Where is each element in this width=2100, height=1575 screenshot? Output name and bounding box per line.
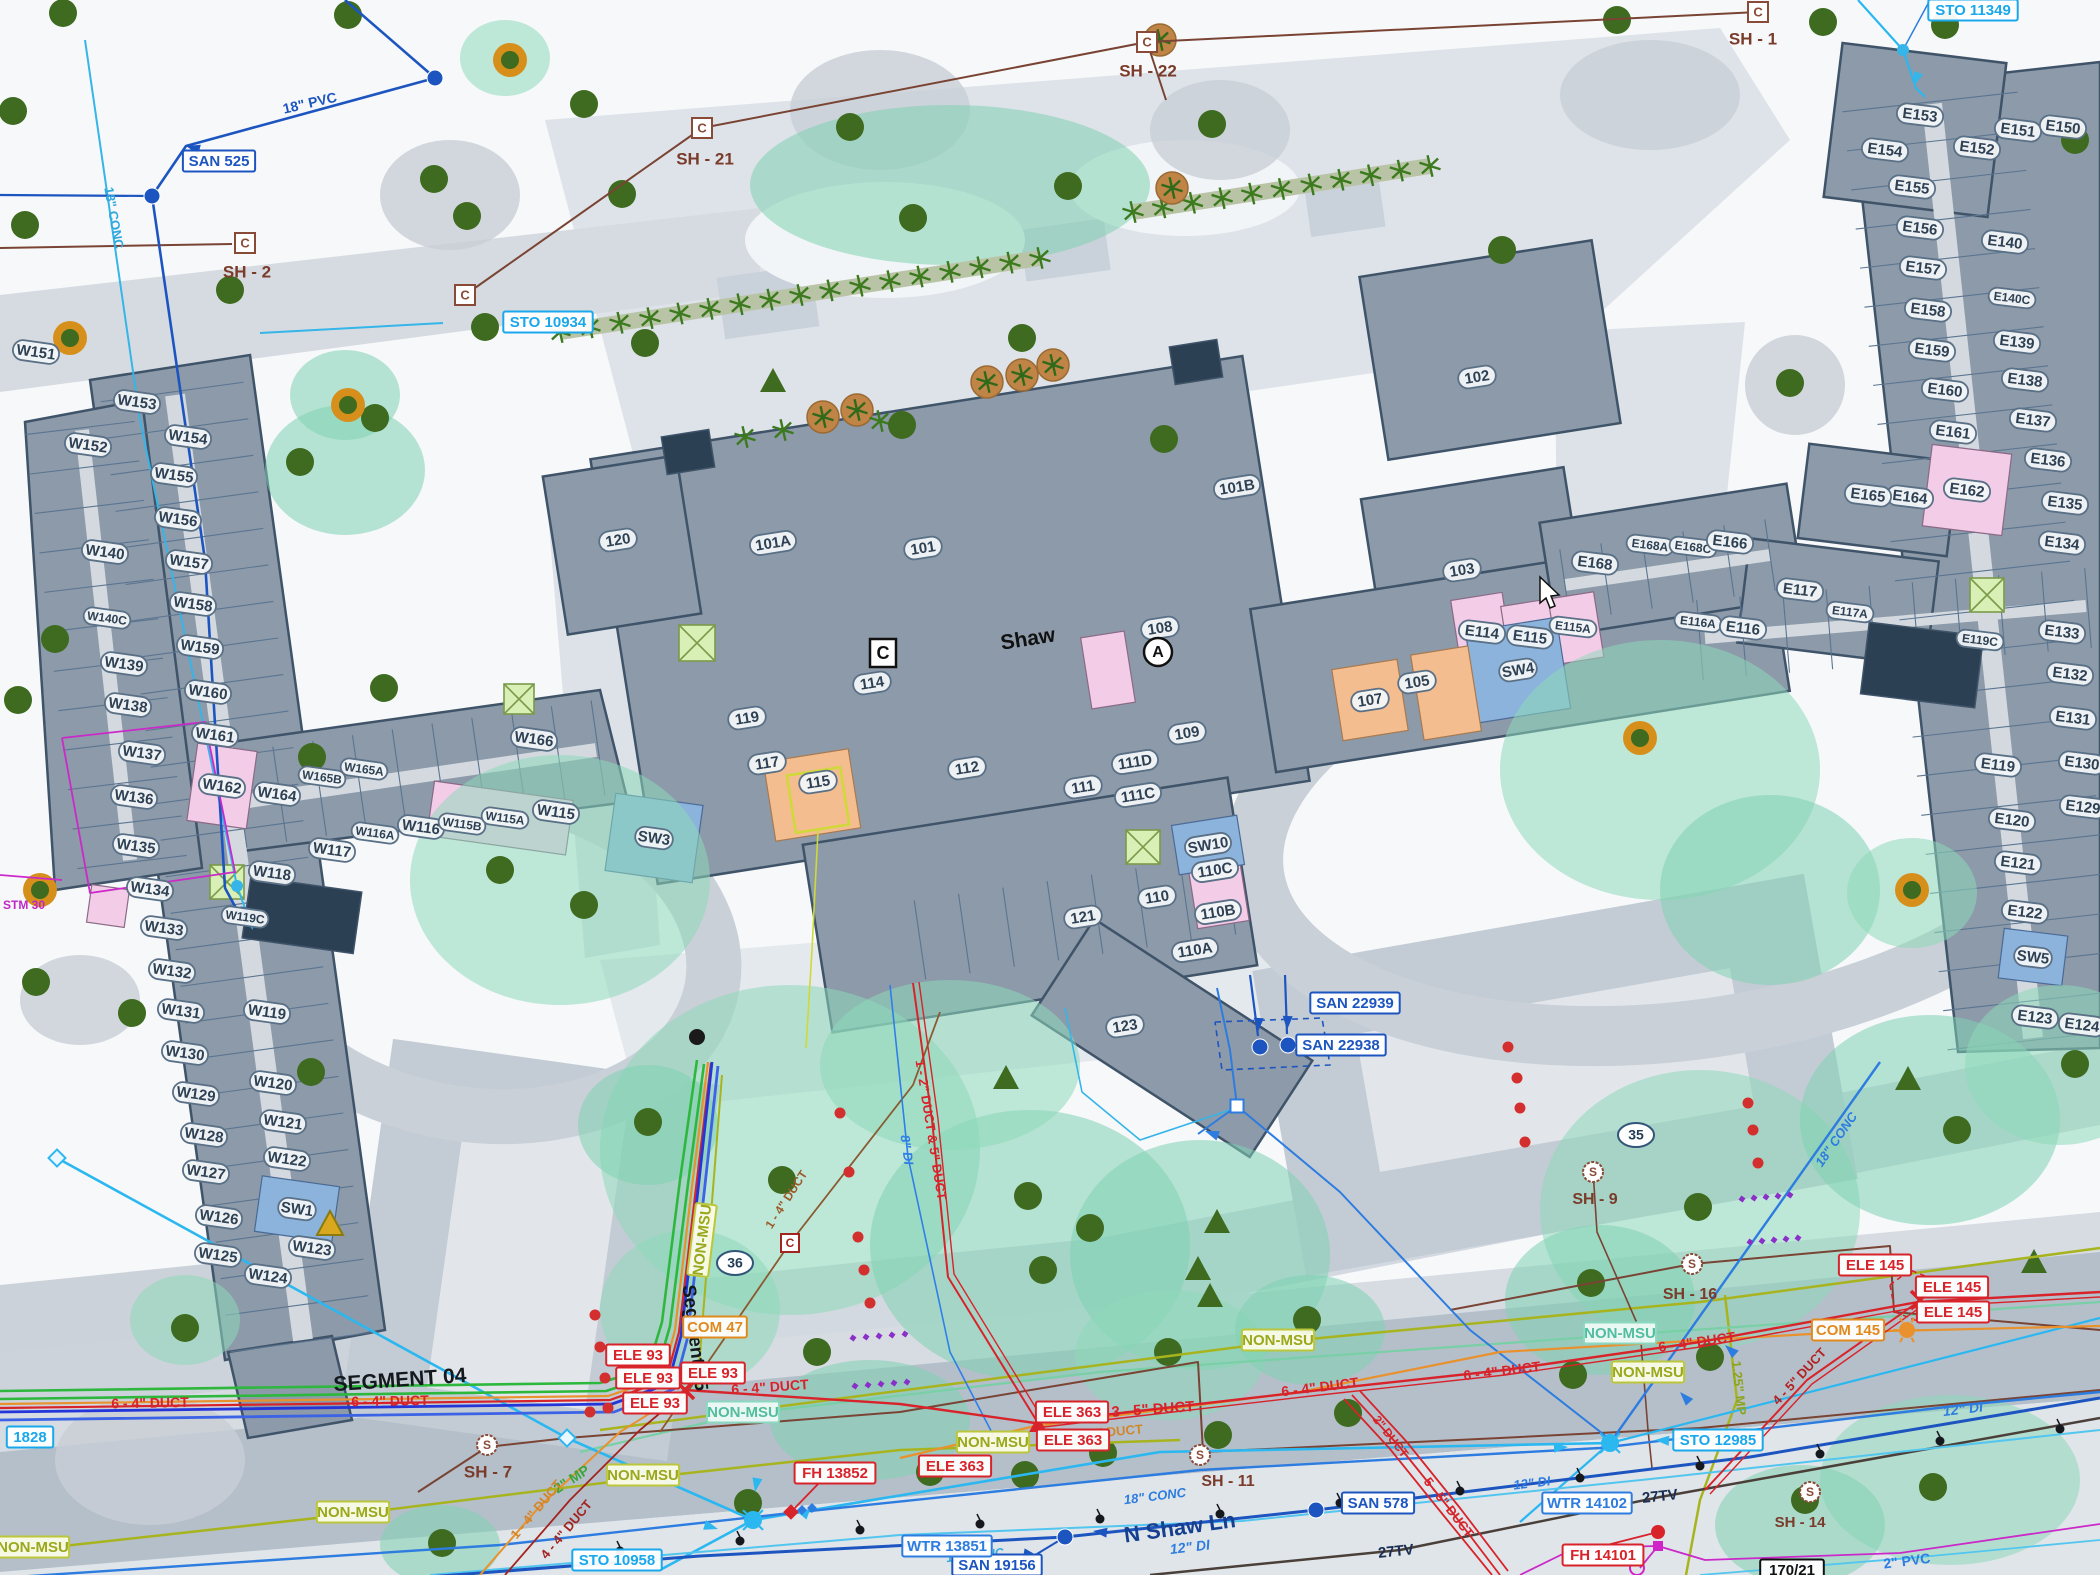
utility-label[interactable]: WTR 13851 xyxy=(902,1536,991,1557)
tree-icon xyxy=(1776,369,1804,397)
utility-line xyxy=(0,195,152,196)
utility-label[interactable]: 1828 xyxy=(7,1427,53,1448)
duct-entry-icon xyxy=(689,1029,705,1045)
tree-canopy xyxy=(820,980,1080,1150)
utility-label-text: ELE 93 xyxy=(623,1370,673,1387)
tree-icon xyxy=(836,113,864,141)
red-dot-icon xyxy=(1748,1125,1759,1136)
utility-label[interactable]: FH 13852 xyxy=(795,1463,876,1484)
storm-node-icon[interactable] xyxy=(231,880,243,892)
streetlight-icon xyxy=(1096,1515,1105,1524)
tree-icon xyxy=(634,1108,662,1136)
streetlight-icon xyxy=(976,1520,985,1529)
tree-icon xyxy=(1488,236,1516,264)
tree-canopy xyxy=(750,105,1150,265)
utility-label-text: SAN 525 xyxy=(189,153,250,170)
building-core xyxy=(661,429,714,474)
red-dot-icon xyxy=(585,1407,596,1418)
tree-icon xyxy=(1198,110,1226,138)
tree-icon xyxy=(370,674,398,702)
tree-icon xyxy=(2061,1050,2089,1078)
utility-label[interactable]: NON-MSU xyxy=(317,1502,389,1523)
utility-label-text: 1828 xyxy=(13,1429,46,1446)
room-label-text: 111 xyxy=(1070,777,1096,797)
streetlight-icon xyxy=(1936,1437,1945,1446)
paving-pad xyxy=(380,140,520,250)
tree-icon xyxy=(1054,172,1082,200)
map-annotation: 6 - 4" DUCT xyxy=(111,1394,189,1411)
utility-label-text: NON-MSU xyxy=(607,1467,679,1484)
tree-canopy xyxy=(1660,795,1880,985)
ring-tree-core xyxy=(339,396,357,414)
paving-pad xyxy=(55,1395,245,1525)
red-dot-icon xyxy=(1503,1042,1514,1053)
utility-label-text: STO 12985 xyxy=(1680,1432,1756,1449)
ring-tree-core xyxy=(1903,881,1921,899)
utility-label[interactable]: STO 10934 xyxy=(503,312,592,333)
tree-icon xyxy=(118,999,146,1027)
utility-label-text: NON-MSU xyxy=(1584,1325,1656,1342)
streetlight-icon xyxy=(856,1526,865,1535)
utility-label[interactable]: NON-MSU xyxy=(1612,1362,1684,1383)
utility-label[interactable]: COM 47 xyxy=(683,1317,747,1338)
utility-label-text: ELE 363 xyxy=(1044,1432,1102,1449)
utility-label[interactable]: FH 14101 xyxy=(1563,1545,1644,1566)
utility-label[interactable]: ELE 93 xyxy=(681,1363,745,1384)
manhole-node-icon[interactable] xyxy=(1057,1529,1073,1545)
steam-marker-text: C xyxy=(1753,4,1763,19)
steam-marker-text: C xyxy=(1142,34,1152,49)
tree-icon xyxy=(888,411,916,439)
entry-marker-text: A xyxy=(1152,644,1164,661)
map-annotation: SH - 7 xyxy=(464,1462,512,1481)
tree-icon xyxy=(1076,1214,1104,1242)
red-dot-icon xyxy=(859,1265,870,1276)
red-dot-icon xyxy=(844,1167,855,1178)
utility-label-text: ELE 145 xyxy=(1846,1257,1904,1274)
utility-label-text: NON-MSU xyxy=(0,1539,69,1556)
tree-icon xyxy=(1684,1193,1712,1221)
ring-tree-core xyxy=(501,51,519,69)
map-annotation: SH - 9 xyxy=(1572,1191,1617,1208)
utility-label-text: NON-MSU xyxy=(1612,1364,1684,1381)
utility-label[interactable]: SAN 22939 xyxy=(1310,993,1399,1014)
utility-label-text: ELE 93 xyxy=(688,1365,738,1382)
tree-icon xyxy=(803,1338,831,1366)
utility-label-text: SAN 22939 xyxy=(1316,995,1394,1012)
red-dot-icon xyxy=(853,1232,864,1243)
paving-pad xyxy=(1560,40,1740,150)
red-dot-icon xyxy=(1753,1158,1764,1169)
utility-label-text: ELE 363 xyxy=(926,1458,984,1475)
steam-manhole-text: S xyxy=(1806,1485,1814,1499)
tree-icon xyxy=(1919,1473,1947,1501)
red-dot-icon xyxy=(590,1310,601,1321)
streetlight-icon xyxy=(2056,1425,2065,1434)
utility-label-text: ELE 363 xyxy=(1043,1404,1101,1421)
map-annotation: STM 30 xyxy=(3,898,45,912)
red-dot-icon xyxy=(1512,1073,1523,1084)
tree-icon xyxy=(420,165,448,193)
utility-label[interactable]: SAN 19156 xyxy=(952,1555,1041,1575)
tree-icon xyxy=(486,856,514,884)
map-canvas[interactable]: SEGMENT 04Segment 05SH - 2SH - 21SH - 22… xyxy=(0,0,2100,1575)
tree-icon xyxy=(4,686,32,714)
utility-label[interactable]: ELE 145 xyxy=(1916,1277,1988,1298)
utility-label[interactable]: NON-MSU xyxy=(707,1402,779,1423)
manhole-node-icon[interactable] xyxy=(144,188,160,204)
manhole-node-icon[interactable] xyxy=(1280,1037,1296,1053)
utility-label-text: STO 10958 xyxy=(579,1552,655,1569)
manhole-node-icon[interactable] xyxy=(427,70,443,86)
red-dot-icon xyxy=(1743,1098,1754,1109)
entry-marker-text: C xyxy=(877,643,890,663)
utility-label[interactable]: COM 145 xyxy=(1812,1320,1884,1341)
tree-icon xyxy=(361,404,389,432)
tree-icon xyxy=(0,97,27,125)
tree-icon xyxy=(49,0,77,27)
red-dot-icon xyxy=(603,1403,614,1414)
map-annotation: SH - 16 xyxy=(1663,1286,1717,1303)
utility-label[interactable]: NON-MSU xyxy=(1584,1323,1656,1344)
tree-icon xyxy=(471,313,499,341)
utility-label-text: 170/21 xyxy=(1769,1562,1815,1575)
utility-label-text: STO 11349 xyxy=(1935,2,2011,19)
tree-icon xyxy=(22,968,50,996)
red-dot-icon xyxy=(1520,1137,1531,1148)
map-annotation: SH - 14 xyxy=(1775,1514,1827,1531)
utility-label[interactable]: SAN 578 xyxy=(1342,1493,1414,1514)
utility-label[interactable]: SAN 22938 xyxy=(1296,1035,1385,1056)
red-dot-icon xyxy=(595,1342,606,1353)
utility-label[interactable]: ELE 93 xyxy=(623,1393,687,1414)
utility-label-text: NON-MSU xyxy=(707,1404,779,1421)
ring-tree-core xyxy=(61,329,79,347)
utility-label[interactable]: STO 11349 xyxy=(1928,0,2017,21)
map-annotation: SH - 11 xyxy=(1201,1473,1254,1490)
map-annotation: 6 - 4" DUCT xyxy=(351,1392,429,1409)
manhole-node-icon[interactable] xyxy=(1252,1039,1268,1055)
tree-icon xyxy=(1008,324,1036,352)
utility-label-text: NON-MSU xyxy=(317,1504,389,1521)
utility-label-text: ELE 93 xyxy=(630,1395,680,1412)
utility-label[interactable]: ELE 363 xyxy=(1037,1430,1109,1451)
utility-label-text: SAN 578 xyxy=(1348,1495,1409,1512)
tree-icon xyxy=(428,1529,456,1557)
utility-label-text: ELE 93 xyxy=(613,1347,663,1364)
steam-marker-text: C xyxy=(460,287,470,302)
building-core xyxy=(1169,339,1222,384)
map-annotation: SH - 21 xyxy=(676,149,734,168)
streetlight-icon xyxy=(1456,1487,1465,1496)
tree-icon xyxy=(1014,1182,1042,1210)
water-node-icon xyxy=(1231,1100,1244,1113)
utility-label-text: SAN 22938 xyxy=(1302,1037,1380,1054)
red-dot-icon xyxy=(835,1108,846,1119)
steam-manhole-text: S xyxy=(1589,1165,1597,1179)
hydrant-dot-icon[interactable] xyxy=(1651,1525,1665,1539)
utility-label[interactable]: SAN 525 xyxy=(183,151,255,172)
steam-marker-text: C xyxy=(697,120,707,135)
utility-label[interactable]: STO 10958 xyxy=(572,1550,661,1571)
utility-label[interactable]: ELE 363 xyxy=(919,1456,991,1477)
red-dot-icon xyxy=(1515,1103,1526,1114)
map-annotation: SH - 2 xyxy=(223,262,271,281)
utility-label-text: SAN 19156 xyxy=(958,1557,1036,1574)
utility-label-text: COM 145 xyxy=(1816,1322,1880,1339)
utility-label[interactable]: WTR 14102 xyxy=(1542,1493,1631,1514)
ring-tree-core xyxy=(31,881,49,899)
utility-label-text: NON-MSU xyxy=(957,1434,1029,1451)
utility-label[interactable]: ELE 93 xyxy=(616,1368,680,1389)
streetlight-icon xyxy=(1696,1462,1705,1471)
map-annotation: SH - 1 xyxy=(1729,29,1777,48)
utility-label[interactable]: 170/21 xyxy=(1760,1560,1824,1575)
utility-label-text: NON-MSU xyxy=(1242,1332,1314,1349)
tree-icon xyxy=(11,211,39,239)
red-dot-icon xyxy=(865,1298,876,1309)
map-annotation: SH - 22 xyxy=(1119,61,1177,80)
storm-node-icon[interactable] xyxy=(1897,44,1909,56)
utility-label-text: FH 13852 xyxy=(802,1465,868,1482)
tree-icon xyxy=(1204,1421,1232,1449)
ring-tree-core xyxy=(1631,729,1649,747)
utility-label-text: ELE 145 xyxy=(1923,1279,1981,1296)
streetlight-icon xyxy=(1576,1474,1585,1483)
utility-label[interactable]: ELE 145 xyxy=(1839,1255,1911,1276)
streetlight-icon xyxy=(1816,1450,1825,1459)
tree-icon xyxy=(570,891,598,919)
tree-icon xyxy=(334,1,362,29)
tree-icon xyxy=(1154,1338,1182,1366)
utility-label-text: STO 10934 xyxy=(510,314,587,331)
utility-label-text: ELE 145 xyxy=(1924,1304,1982,1321)
utility-label[interactable]: NON-MSU xyxy=(0,1537,69,1558)
tree-icon xyxy=(297,1058,325,1086)
manhole-node-icon[interactable] xyxy=(1308,1502,1324,1518)
tree-icon xyxy=(570,90,598,118)
utility-label[interactable]: ELE 145 xyxy=(1917,1302,1989,1323)
tree-icon xyxy=(899,204,927,232)
tree-icon xyxy=(286,448,314,476)
utility-label[interactable]: NON-MSU xyxy=(607,1465,679,1486)
utility-label[interactable]: STO 12985 xyxy=(1673,1430,1762,1451)
building-footprint xyxy=(1359,240,1620,459)
utility-label-text: WTR 13851 xyxy=(907,1538,987,1555)
utility-label-text: FH 14101 xyxy=(1570,1547,1636,1564)
utility-label[interactable]: ELE 93 xyxy=(606,1345,670,1366)
tree-icon xyxy=(1809,8,1837,36)
utility-label[interactable]: ELE 363 xyxy=(1036,1402,1108,1423)
steam-manhole-text: S xyxy=(1196,1448,1204,1462)
streetlight-icon xyxy=(736,1537,745,1546)
tree-icon xyxy=(1150,425,1178,453)
utility-label-text: WTR 14102 xyxy=(1547,1495,1627,1512)
red-dot-icon xyxy=(600,1373,611,1384)
utility-label-text: COM 47 xyxy=(687,1319,743,1336)
campus-utility-map: SEGMENT 04Segment 05SH - 2SH - 21SH - 22… xyxy=(0,0,2100,1575)
steam-marker-text: C xyxy=(240,235,250,250)
tree-icon xyxy=(453,202,481,230)
comm-node-icon[interactable] xyxy=(1899,1322,1915,1338)
lot-number-text: 35 xyxy=(1628,1127,1644,1143)
utility-label[interactable]: NON-MSU xyxy=(1242,1330,1314,1351)
tree-icon xyxy=(41,625,69,653)
tree-canopy xyxy=(410,755,710,1005)
tree-icon xyxy=(631,329,659,357)
tree-icon xyxy=(171,1314,199,1342)
duct-marker-text: C xyxy=(786,1236,795,1250)
utility-label[interactable]: NON-MSU xyxy=(957,1432,1029,1453)
tree-icon xyxy=(1943,1116,1971,1144)
steam-node-icon xyxy=(1653,1541,1663,1551)
lot-number-text: 36 xyxy=(727,1255,743,1271)
steam-manhole-text: S xyxy=(1688,1257,1696,1271)
tree-icon xyxy=(1029,1256,1057,1284)
steam-manhole-text: S xyxy=(483,1438,491,1452)
